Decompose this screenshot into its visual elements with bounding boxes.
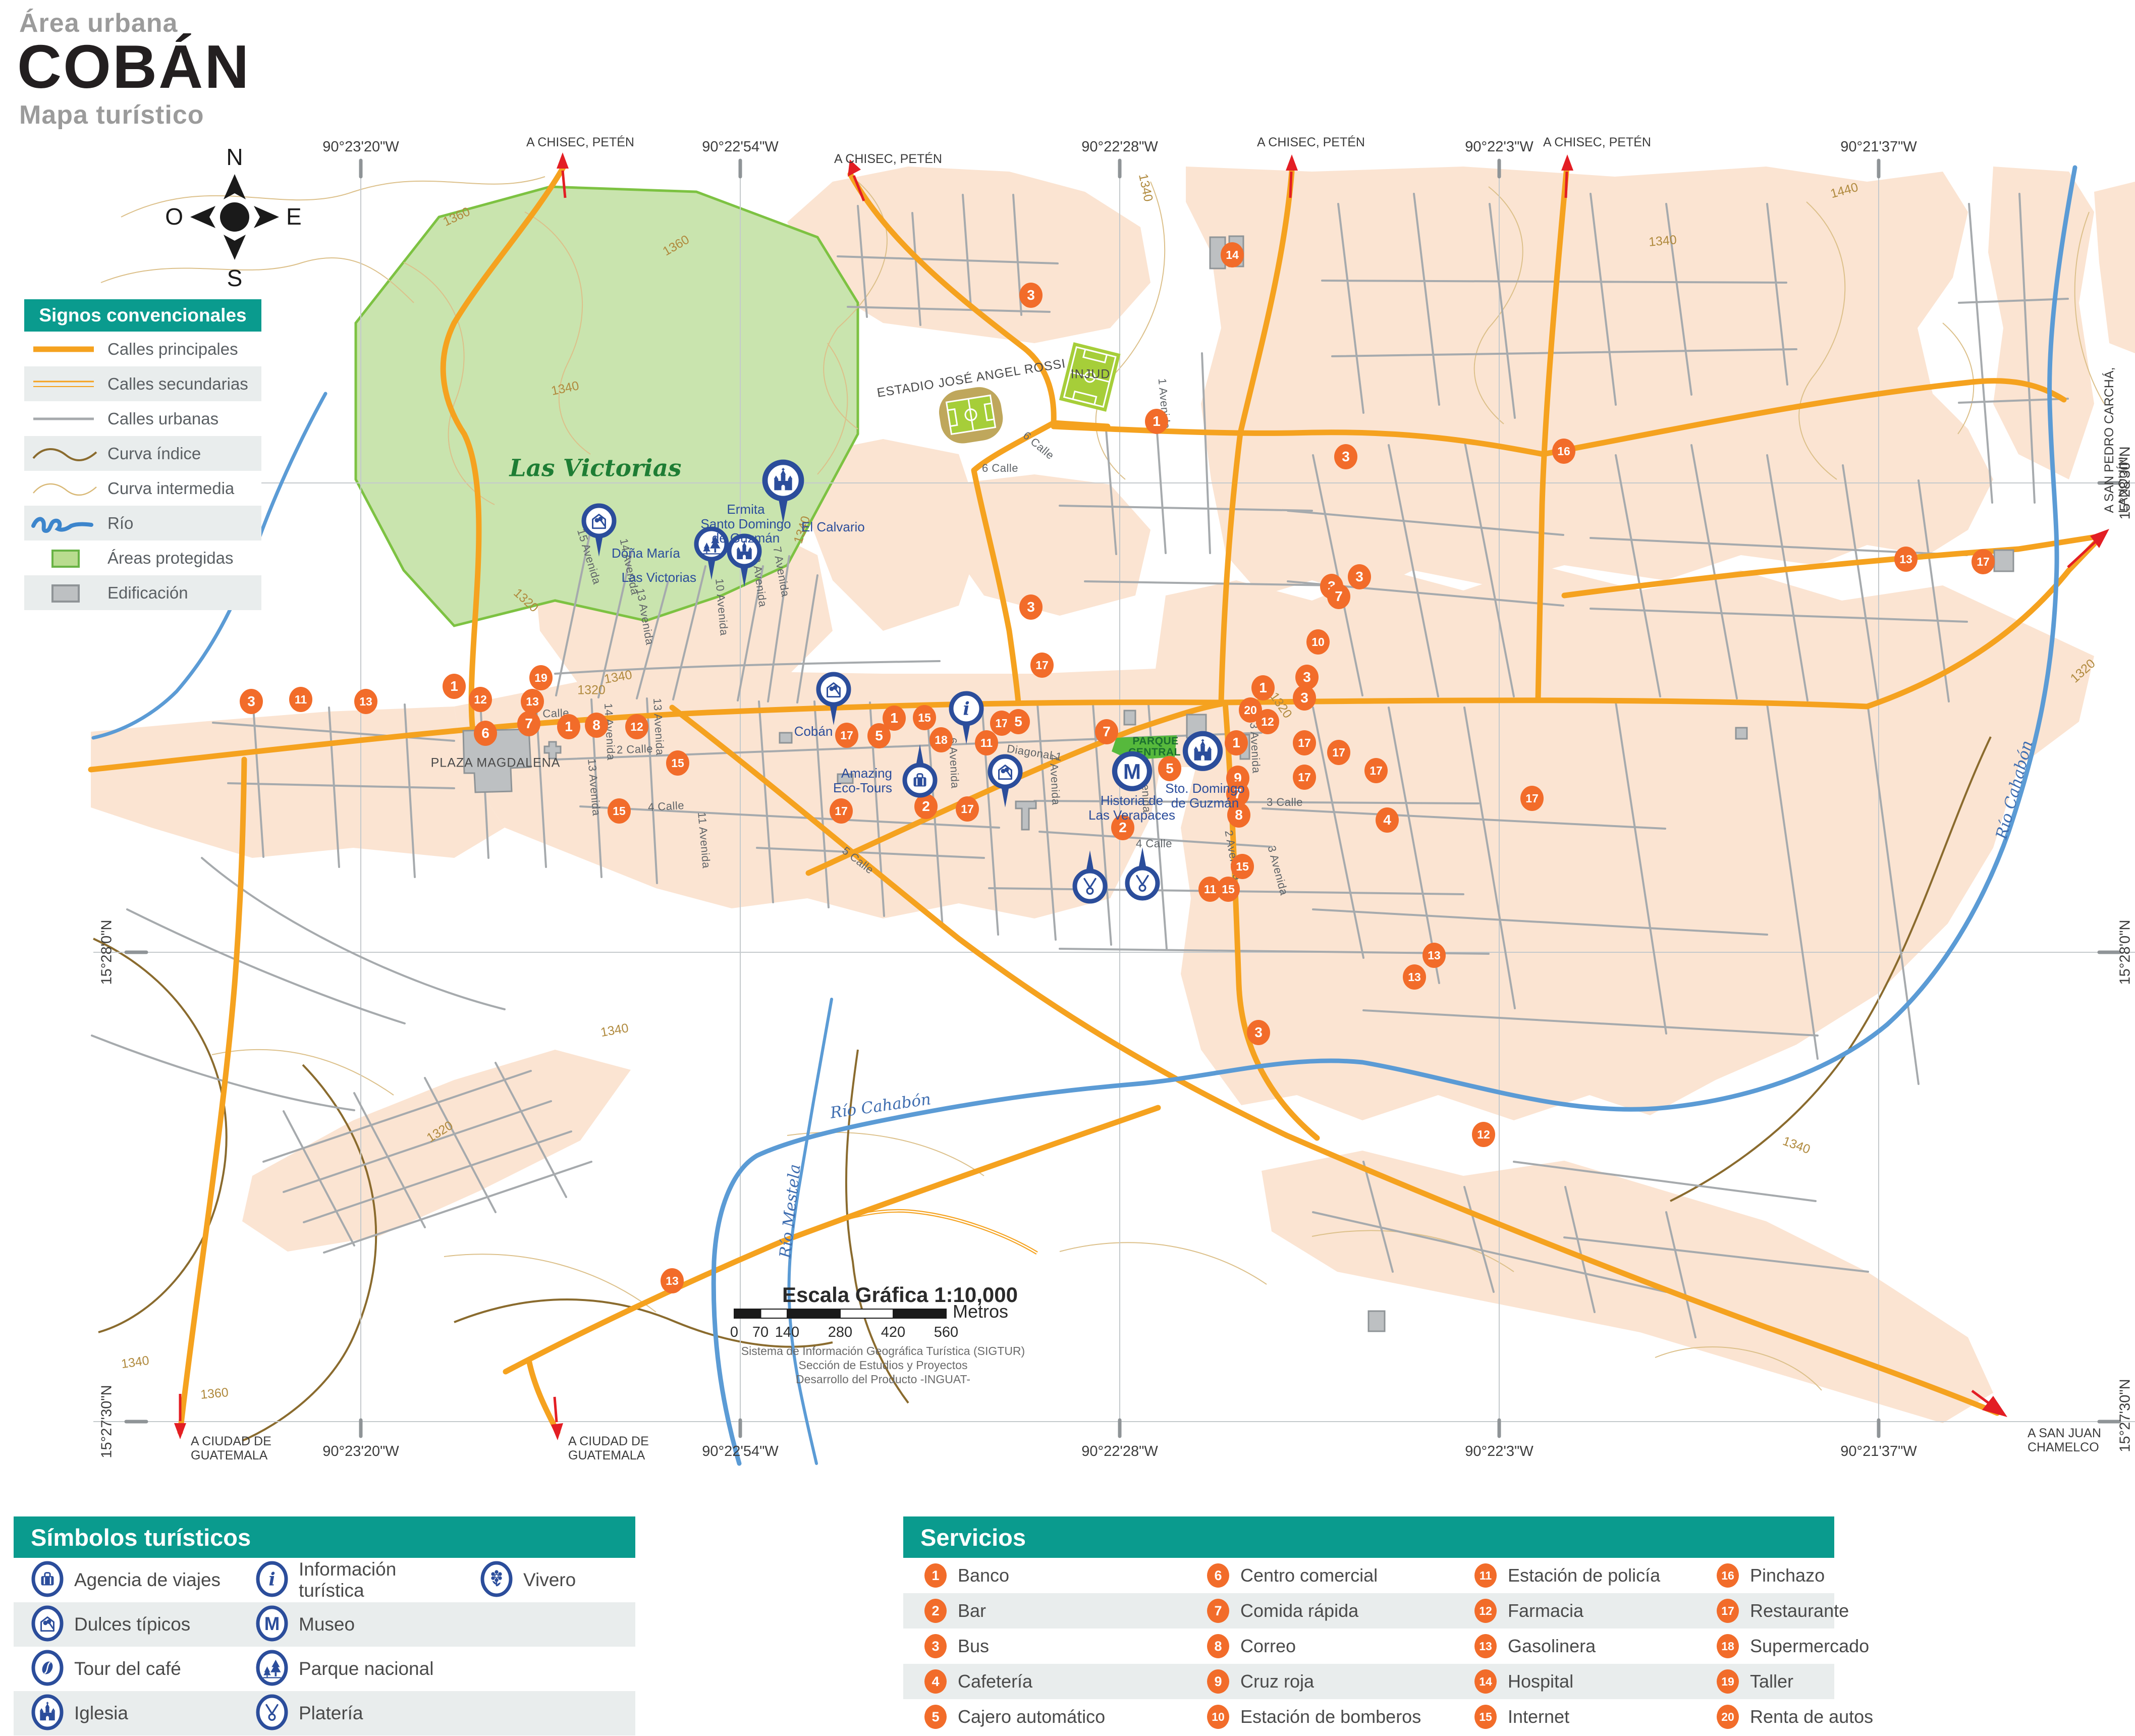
legend-item-calles-principales: Calles principales: [24, 332, 261, 366]
edificacion-symbol: [24, 580, 107, 606]
service-marker-7: 7: [1327, 584, 1350, 609]
plateria-icon: [255, 1694, 289, 1731]
graticule-label: 90°22'3"W: [1465, 139, 1533, 155]
pin-dulces: [980, 734, 1030, 812]
museo-icon: [255, 1605, 289, 1642]
compass-n: N: [226, 144, 243, 170]
legend-item-curva-indice: Curva índice: [24, 436, 261, 471]
destination-label: A CIUDAD DEGUATEMALA: [191, 1434, 271, 1462]
servicio-label: Bar: [958, 1600, 986, 1621]
servicio-8: 8Correo: [1186, 1634, 1453, 1658]
compass-rose: N S E O: [159, 139, 310, 290]
servicio-1: 1Banco: [903, 1563, 1186, 1588]
pin-label: AmazingEco-Tours: [833, 766, 892, 795]
servicio-label: Estación de bomberos: [1240, 1706, 1421, 1727]
museo-icon: [255, 1605, 289, 1645]
service-marker-7: 7: [517, 711, 540, 736]
servicio-20: 20Renta de autos: [1695, 1705, 1834, 1729]
servicio-3: 3Bus: [903, 1634, 1186, 1658]
service-marker-1: 1: [443, 674, 466, 699]
curva-intermedia-symbol: [24, 476, 107, 501]
servicio-badge-9: 9: [1207, 1669, 1229, 1694]
service-marker-3: 3: [1019, 283, 1043, 308]
servicio-12: 12Farmacia: [1453, 1599, 1695, 1623]
cafe-icon: [31, 1649, 64, 1689]
map-label: 1340: [1648, 233, 1677, 250]
simbolo-label: Dulces típicos: [74, 1614, 190, 1635]
pin-label: Doña María: [612, 546, 680, 561]
graticule-label: 90°22'28"W: [1081, 139, 1158, 155]
simbolo-iglesia: Iglesia: [14, 1694, 238, 1733]
servicio-badge-10: 10: [1207, 1705, 1229, 1729]
simbolo-museo: Museo: [238, 1605, 463, 1645]
servicio-label: Correo: [1240, 1636, 1296, 1657]
servicio-badge-2: 2: [924, 1599, 947, 1623]
servicio-badge-20: 20: [1717, 1705, 1739, 1729]
map-label: 4 Calle: [647, 799, 684, 814]
servicio-badge-18: 18: [1717, 1634, 1739, 1658]
service-marker-12: 12: [469, 687, 492, 712]
simbolo-label: Información turística: [299, 1559, 463, 1601]
servicio-label: Cafetería: [958, 1671, 1032, 1692]
simbolo-label: Tour del café: [74, 1658, 181, 1679]
pin-label: Las Victorias: [622, 570, 696, 585]
simbolo-label: Platería: [299, 1703, 363, 1724]
scale-unit: Metros: [953, 1301, 1008, 1322]
service-marker-1: 1: [1145, 409, 1168, 434]
service-marker-3: 3: [1293, 685, 1316, 711]
graticule-label: 90°22'54"W: [702, 139, 779, 155]
servicio-17: 17Restaurante: [1695, 1599, 1834, 1623]
pin-label: Sto. Domingode Guzmán: [1165, 781, 1245, 810]
service-marker-3: 3: [1247, 1020, 1270, 1045]
parque-icon: [255, 1649, 289, 1689]
curva-indice-symbol: [24, 441, 107, 466]
simbolos-row: Agencia de viajesInformación turísticaVi…: [14, 1558, 635, 1602]
servicio-4: 4Cafetería: [903, 1669, 1186, 1694]
pin-plateria: [1065, 848, 1115, 927]
simbolo-parque: Parque nacional: [238, 1649, 463, 1689]
service-marker-13: 13: [354, 689, 377, 714]
service-marker-17: 17: [1327, 740, 1350, 765]
destination-label: A SAN JUANCHAMELCO: [2028, 1426, 2101, 1454]
servicio-18: 18Supermercado: [1695, 1634, 1834, 1658]
graticule-label: 90°23'20"W: [322, 139, 399, 155]
servicio-label: Gasolinera: [1508, 1636, 1596, 1657]
service-marker-12: 12: [1472, 1122, 1495, 1147]
servicio-badge-11: 11: [1474, 1563, 1497, 1588]
calles-principales-symbol: [24, 337, 107, 362]
pin-dulces: [808, 652, 859, 730]
map-label: Las Victorias: [509, 455, 681, 482]
service-marker-14: 14: [1221, 242, 1244, 267]
servicio-badge-12: 12: [1474, 1599, 1497, 1623]
service-marker-15: 15: [913, 705, 936, 730]
servicio-label: Cruz roja: [1240, 1671, 1314, 1692]
legend-servicios: Servicios 1Banco6Centro comercial11Estac…: [903, 1516, 1834, 1734]
servicio-badge-15: 15: [1474, 1705, 1497, 1729]
legend-item-curva-intermedia: Curva intermedia: [24, 471, 261, 506]
legend-item-edificacion: Edificación: [24, 575, 261, 610]
scale-tick: 420: [881, 1324, 905, 1341]
service-marker-13: 13: [1422, 943, 1446, 968]
map-label: 1360: [200, 1385, 229, 1402]
info-icon: [255, 1560, 289, 1598]
simbolo-agencia: Agencia de viajes: [14, 1560, 238, 1600]
service-marker-17: 17: [830, 798, 853, 824]
servicio-label: Internet: [1508, 1706, 1569, 1727]
servicio-7: 7Comida rápida: [1186, 1599, 1453, 1623]
legend-item-areas-protegidas: Áreas protegidas: [24, 540, 261, 575]
pin-label: Historia deLas Verapaces: [1088, 793, 1175, 822]
parque-icon: [255, 1649, 289, 1687]
servicios-row: 3Bus8Correo13Gasolinera18Supermercado: [903, 1629, 1834, 1664]
servicio-badge-6: 6: [1207, 1563, 1229, 1588]
pin-label: ErmitaSanto Domingode Guzmán: [700, 502, 791, 546]
destination-label: A CHISEC, PETÉN: [1543, 135, 1651, 149]
scale-tick: 0: [730, 1324, 738, 1341]
credit-line-2: Sección de Estudios y Proyectos: [727, 1359, 1039, 1372]
service-marker-12: 12: [625, 714, 648, 739]
servicio-9: 9Cruz roja: [1186, 1669, 1453, 1694]
service-marker-3: 3: [240, 689, 263, 714]
service-marker-3: 3: [1348, 564, 1371, 589]
service-marker-13: 13: [521, 689, 544, 714]
servicio-15: 15Internet: [1453, 1705, 1695, 1729]
servicio-label: Restaurante: [1750, 1600, 1849, 1621]
service-marker-10: 10: [1306, 629, 1330, 655]
scale-bar-graphic: [727, 1307, 959, 1322]
simbolo-label: Museo: [299, 1614, 355, 1635]
servicio-11: 11Estación de policía: [1453, 1563, 1695, 1588]
rio-symbol: [24, 511, 107, 536]
graticule-label: 90°21'37"W: [1840, 1443, 1917, 1460]
simbolo-info: Información turística: [238, 1559, 463, 1601]
servicio-13: 13Gasolinera: [1453, 1634, 1695, 1658]
service-marker-1: 1: [557, 714, 580, 739]
legend-item-calles-secundarias: Calles secundarias: [24, 366, 261, 401]
service-marker-3: 3: [1334, 444, 1357, 469]
dulces-icon: [31, 1605, 64, 1642]
servicio-6: 6Centro comercial: [1186, 1563, 1453, 1588]
service-marker-15: 15: [666, 750, 689, 776]
dulces-icon: [31, 1605, 64, 1645]
scale-tick: 560: [934, 1324, 958, 1341]
servicio-badge-5: 5: [924, 1705, 947, 1729]
pin-label: El Calvario: [801, 520, 865, 534]
servicio-label: Hospital: [1508, 1671, 1573, 1692]
simbolo-label: Vivero: [523, 1569, 576, 1591]
service-marker-6: 6: [474, 721, 497, 746]
simbolo-cafe: Tour del café: [14, 1649, 238, 1689]
servicio-label: Renta de autos: [1750, 1706, 1873, 1727]
map-label: 3 Calle: [1267, 796, 1303, 809]
servicio-badge-8: 8: [1207, 1634, 1229, 1658]
coban-tourist-map-page: Área urbana COBÁN Mapa turístico N S E O…: [0, 0, 2135, 1736]
servicio-16: 16Pinchazo: [1695, 1563, 1834, 1588]
servicio-badge-16: 16: [1717, 1563, 1739, 1588]
scale-tick: 70: [752, 1324, 769, 1341]
credit-line-3: Desarrollo del Producto -INGUAT-: [727, 1373, 1039, 1386]
service-marker-1: 1: [1251, 675, 1275, 700]
service-marker-17: 17: [956, 796, 979, 822]
simbolo-label: Iglesia: [74, 1703, 128, 1724]
service-marker-4: 4: [1376, 807, 1399, 833]
service-marker-11: 11: [289, 687, 312, 712]
agencia-icon: [31, 1560, 64, 1600]
areas-protegidas-symbol: [24, 546, 107, 571]
servicio-badge-3: 3: [924, 1634, 947, 1658]
service-marker-17: 17: [1972, 549, 1995, 574]
servicios-title: Servicios: [903, 1516, 1834, 1558]
servicio-badge-19: 19: [1717, 1669, 1739, 1694]
agencia-icon: [31, 1560, 64, 1598]
destination-label: A CHISEC, PETÉN: [526, 135, 634, 149]
cafe-icon: [31, 1649, 64, 1687]
service-marker-13: 13: [1894, 547, 1918, 572]
servicio-label: Cajero automático: [958, 1706, 1105, 1727]
simbolo-vivero: Vivero: [463, 1560, 687, 1600]
servicio-2: 2Bar: [903, 1599, 1186, 1623]
servicio-14: 14Hospital: [1453, 1669, 1695, 1694]
service-marker-15: 15: [1231, 854, 1254, 879]
servicios-row: 4Cafetería9Cruz roja14Hospital19Taller: [903, 1664, 1834, 1699]
simbolos-row: Tour del caféParque nacional: [14, 1647, 635, 1691]
servicio-label: Pinchazo: [1750, 1565, 1825, 1586]
compass-o: O: [165, 203, 183, 230]
service-marker-5: 5: [1007, 709, 1030, 734]
vivero-icon: [480, 1560, 513, 1598]
service-marker-3: 3: [1019, 594, 1043, 620]
service-marker-17: 17: [1030, 653, 1054, 678]
pin-label: Cobán: [794, 724, 833, 739]
servicio-badge-1: 1: [924, 1563, 947, 1588]
legend-signos-convencionales: Signos convencionales Calles principales…: [24, 299, 261, 610]
service-marker-19: 19: [529, 665, 553, 690]
simbolos-row: Dulces típicosMuseo: [14, 1602, 635, 1647]
service-marker-13: 13: [661, 1268, 684, 1293]
stadium: [936, 384, 1006, 447]
pin-agencia: [895, 742, 945, 821]
graticule-label: 15°28'0"N: [2117, 919, 2134, 985]
servicios-row: 5Cajero automático10Estación de bomberos…: [903, 1699, 1834, 1734]
calles-secundarias-symbol: [24, 371, 107, 397]
simbolos-row: IglesiaPlatería: [14, 1691, 635, 1735]
legend-signos-title: Signos convencionales: [24, 299, 261, 332]
graticule-label: 90°21'37"W: [1840, 139, 1917, 155]
service-marker-17: 17: [1364, 758, 1388, 783]
credit-line-1: Sistema de Información Geográfica Turíst…: [727, 1344, 1039, 1358]
iglesia-icon: [31, 1694, 64, 1733]
servicio-badge-4: 4: [924, 1669, 947, 1694]
destination-label: A CHISEC, PETÉN: [1257, 135, 1365, 149]
destination-label: A CHISEC, PETÉN: [834, 152, 942, 166]
map-label: 6 Calle: [982, 462, 1018, 475]
servicios-row: 1Banco6Centro comercial11Estación de pol…: [903, 1558, 1834, 1593]
servicio-19: 19Taller: [1695, 1669, 1834, 1694]
simbolo-label: Parque nacional: [299, 1658, 433, 1679]
servicio-label: Comida rápida: [1240, 1600, 1358, 1621]
servicio-5: 5Cajero automático: [903, 1705, 1186, 1729]
graticule-label: 90°22'54"W: [702, 1443, 779, 1460]
servicio-label: Farmacia: [1508, 1600, 1583, 1621]
servicio-label: Taller: [1750, 1671, 1793, 1692]
service-marker-15: 15: [1217, 877, 1240, 902]
pin-plateria: [1117, 845, 1168, 924]
servicio-badge-17: 17: [1717, 1599, 1739, 1623]
service-marker-1: 1: [883, 706, 906, 731]
graticule-label: 15°27'30"N: [2117, 1379, 2134, 1452]
simbolo-plateria: Platería: [238, 1694, 463, 1733]
graticule-label: 90°23'20"W: [322, 1443, 399, 1460]
servicio-badge-13: 13: [1474, 1634, 1497, 1658]
servicio-badge-7: 7: [1207, 1599, 1229, 1623]
legend-item-calles-urbanas: Calles urbanas: [24, 401, 261, 436]
destination-label: A SAN PEDRO CARCHÁ,LANQUÍN: [2102, 367, 2130, 513]
service-marker-16: 16: [1552, 439, 1575, 464]
servicios-row: 2Bar7Comida rápida12Farmacia17Restaurant…: [903, 1593, 1834, 1629]
compass-s: S: [227, 265, 243, 290]
legend-item-rio: Río: [24, 506, 261, 540]
map-label: 1320: [577, 683, 606, 698]
plateria-icon: [255, 1694, 289, 1733]
iglesia-icon: [31, 1694, 64, 1731]
scale-tick: 140: [775, 1324, 799, 1341]
service-marker-17: 17: [1293, 765, 1316, 790]
destination-label: A CIUDAD DEGUATEMALA: [568, 1434, 649, 1462]
servicio-label: Supermercado: [1750, 1636, 1869, 1657]
service-marker-8: 8: [585, 713, 608, 738]
servicio-label: Centro comercial: [1240, 1565, 1378, 1586]
servicio-10: 10Estación de bomberos: [1186, 1705, 1453, 1729]
vivero-icon: [480, 1560, 513, 1600]
graticule-label: 15°28'0"N: [99, 919, 116, 985]
graticule-label: 90°22'3"W: [1465, 1443, 1533, 1460]
graticule-label: 15°27'30"N: [99, 1385, 116, 1458]
service-marker-13: 13: [1403, 964, 1426, 990]
service-marker-17: 17: [1293, 730, 1316, 755]
servicio-badge-14: 14: [1474, 1669, 1497, 1694]
graticule-label: 90°22'28"W: [1081, 1443, 1158, 1460]
calles-urbanas-symbol: [24, 406, 107, 431]
simbolo-dulces: Dulces típicos: [14, 1605, 238, 1645]
servicio-label: Estación de policía: [1508, 1565, 1660, 1586]
legend-simbolos-turisticos: Símbolos turísticos Agencia de viajesInf…: [14, 1516, 635, 1735]
map-label: 2 Calle: [617, 742, 653, 756]
simbolo-label: Agencia de viajes: [74, 1569, 221, 1591]
map-label: PLAZA MAGDALENA: [431, 756, 561, 771]
service-marker-15: 15: [608, 798, 631, 824]
compass-e: E: [286, 203, 302, 230]
info-icon: [255, 1560, 289, 1600]
service-marker-17: 17: [1520, 786, 1544, 811]
servicio-label: Bus: [958, 1636, 989, 1657]
simbolos-title: Símbolos turísticos: [14, 1516, 635, 1558]
scale-tick: 280: [828, 1324, 852, 1341]
service-marker-12: 12: [1256, 709, 1279, 734]
servicio-label: Banco: [958, 1565, 1009, 1586]
secondary-road: [757, 1211, 1037, 1253]
map-label: INJUD: [1071, 367, 1111, 382]
